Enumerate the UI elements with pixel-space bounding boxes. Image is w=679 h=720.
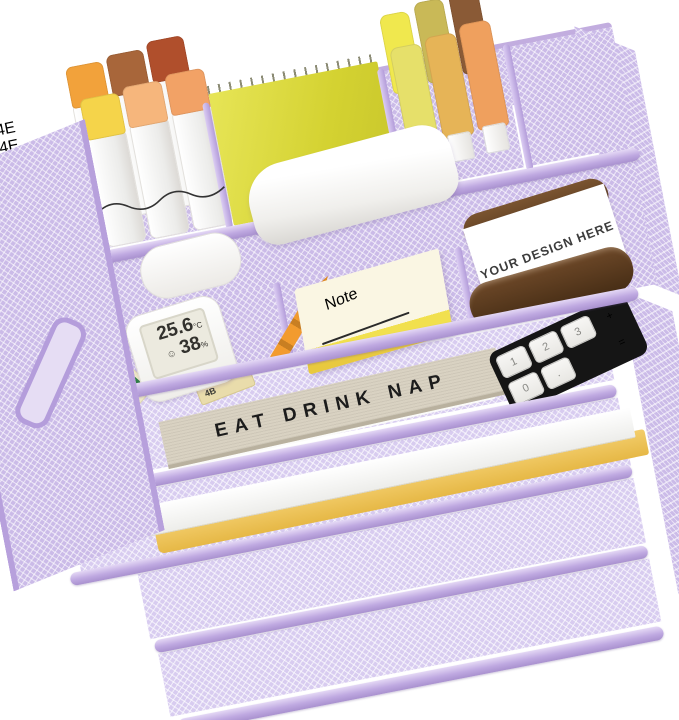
humidity-value: 38	[177, 333, 203, 359]
calc-key-dot: .	[539, 356, 578, 391]
marker-cap	[121, 80, 168, 129]
side-handle-cutout	[11, 313, 91, 433]
smiley-face-icon: ☺	[165, 348, 178, 362]
product-photo-desk-organizer: UHU stic 25.6°C ☺ 38% 4B	[0, 0, 679, 720]
temperature-unit: °C	[192, 320, 203, 331]
mesh-organizer: UHU stic 25.6°C ☺ 38% 4B	[0, 0, 679, 720]
highlighter-shaft	[482, 122, 511, 154]
humidity-unit: %	[200, 339, 209, 350]
calc-key-3: 3	[559, 315, 598, 350]
note-text: Note	[323, 285, 360, 315]
calc-key-equals: =	[603, 326, 641, 359]
